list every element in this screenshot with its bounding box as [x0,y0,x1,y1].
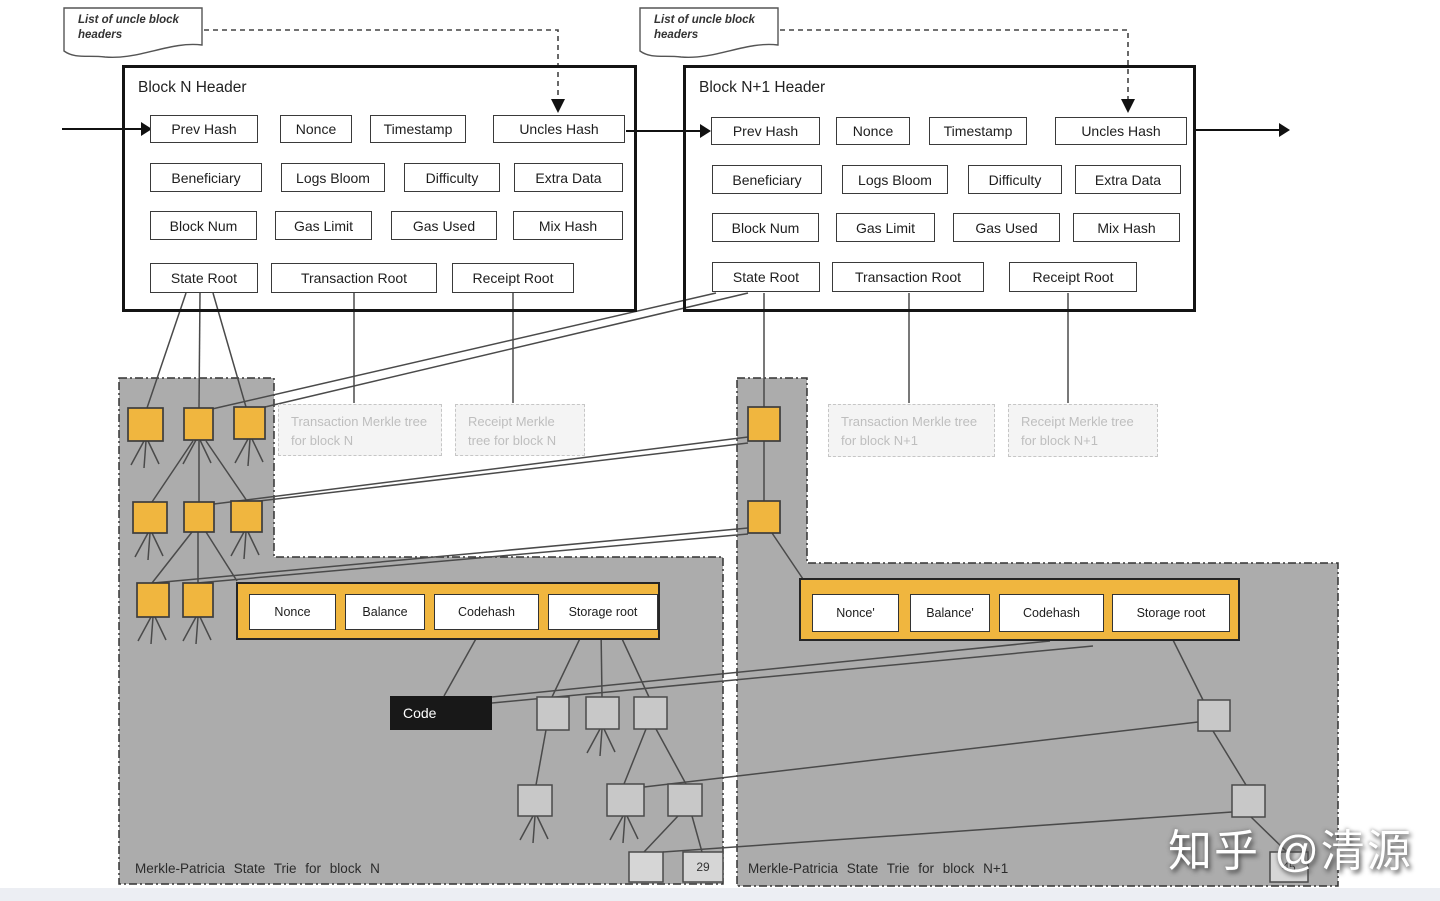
trie-node [231,501,262,532]
field-difficulty-n1: Difficulty [968,165,1062,194]
field-nonce-n: Nonce [280,115,352,143]
field-uncles-hash-n1: Uncles Hash [1055,117,1187,145]
uncle-note-n1: List of uncle block headers [654,13,776,43]
trie-caption-n1: Merkle-Patricia State Trie for block N+1 [748,861,1008,876]
block-n1-title: Block N+1 Header [699,79,825,97]
storage-leaf-value-29: 29 [683,852,723,882]
chain-arrowhead-icon [1279,123,1290,137]
field-gas-used-n: Gas Used [391,211,497,240]
field-nonce-n1: Nonce [836,117,910,145]
field-beneficiary-n1: Beneficiary [712,165,822,194]
field-gas-limit-n: Gas Limit [275,211,372,240]
storage-node-n1 [1198,700,1230,731]
field-mix-hash-n1: Mix Hash [1073,213,1180,242]
storage-node [537,697,569,730]
uncle-note-n: List of uncle block headers [78,13,200,43]
trie-node [133,502,167,533]
ethereum-block-structure-diagram: List of uncle block headers List of uncl… [0,0,1440,901]
storage-node [586,697,619,729]
trie-node [137,583,169,617]
field-difficulty-n: Difficulty [404,163,500,192]
field-transaction-root-n1: Transaction Root [832,262,984,292]
field-block-num-n1: Block Num [712,213,819,242]
trie-caption-n: Merkle-Patricia State Trie for block N [135,861,380,876]
storage-node [668,784,702,816]
receipt-merkle-box-n1: Receipt Merkle tree for block N+1 [1008,404,1158,457]
account-bar-n1: Nonce' Balance' Codehash Storage root [799,578,1240,641]
field-transaction-root-n: Transaction Root [271,263,437,293]
account-balance-n: Balance [345,594,425,630]
trie-node [184,502,214,532]
trie-node-n1-root-child [748,407,780,441]
field-mix-hash-n: Mix Hash [513,211,623,240]
account-nonce-n: Nonce [249,594,336,630]
account-codehash-n1: Codehash [999,594,1104,632]
trie-node [184,408,213,440]
field-gas-limit-n1: Gas Limit [836,213,935,242]
field-receipt-root-n: Receipt Root [452,263,574,293]
field-gas-used-n1: Gas Used [953,213,1060,242]
field-beneficiary-n: Beneficiary [150,163,262,192]
watermark: 知乎 @清源 [1168,815,1413,879]
account-nonce-n1: Nonce' [812,594,899,632]
field-uncles-hash-n: Uncles Hash [493,115,625,143]
storage-node [634,697,667,729]
account-storage-root-n1: Storage root [1112,594,1230,632]
field-timestamp-n1: Timestamp [929,117,1027,145]
account-balance-n1: Balance' [910,594,990,632]
trie-node [128,408,163,441]
account-storage-root-n: Storage root [548,594,658,630]
block-n-title: Block N Header [138,79,247,97]
page-bottom-strip [0,888,1440,901]
account-codehash-n: Codehash [434,594,539,630]
field-extra-data-n1: Extra Data [1075,165,1181,194]
trie-node-n1-branch [748,501,780,533]
field-receipt-root-n1: Receipt Root [1009,262,1137,292]
storage-leaf [629,852,663,882]
field-extra-data-n: Extra Data [514,163,623,192]
field-block-num-n: Block Num [150,211,257,240]
receipt-merkle-box-n: Receipt Merkle tree for block N [455,404,585,456]
field-prev-hash-n1: Prev Hash [711,117,820,145]
field-prev-hash-n: Prev Hash [150,115,258,143]
storage-node [607,784,644,816]
field-logs-bloom-n1: Logs Bloom [842,165,948,194]
trie-node [183,583,213,617]
field-timestamp-n: Timestamp [370,115,466,143]
account-bar-n: Nonce Balance Codehash Storage root [236,582,660,640]
trie-node [234,407,265,439]
code-box: Code [390,696,492,730]
storage-node-n1 [1232,785,1265,817]
storage-node [518,785,552,816]
field-logs-bloom-n: Logs Bloom [281,163,385,192]
tx-merkle-box-n1: Transaction Merkle tree for block N+1 [828,404,995,457]
tx-merkle-box-n: Transaction Merkle tree for block N [278,404,442,456]
field-state-root-n: State Root [150,263,258,293]
field-state-root-n1: State Root [712,262,820,292]
